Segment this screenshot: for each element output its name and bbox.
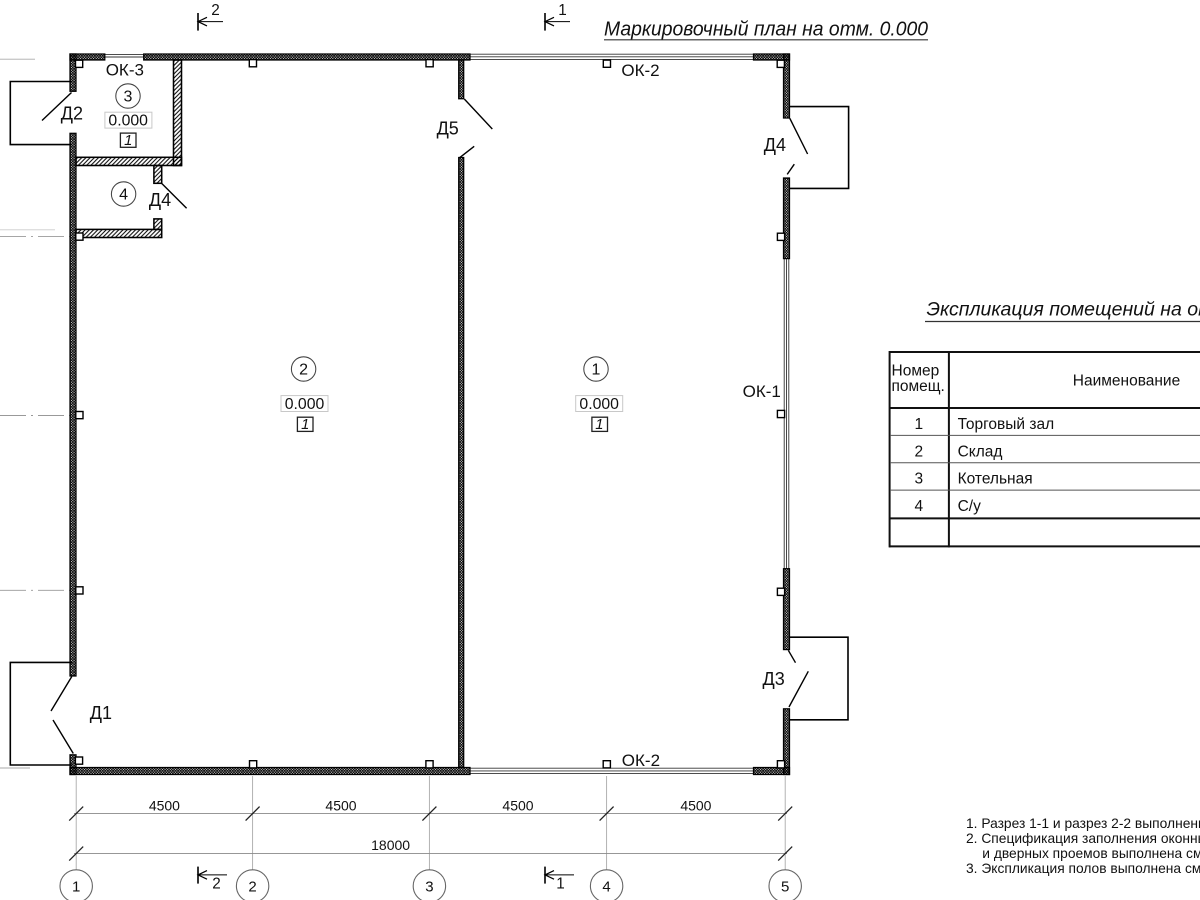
svg-text:4: 4 (602, 879, 610, 896)
svg-text:0.000: 0.000 (285, 396, 325, 413)
svg-text:4500: 4500 (502, 797, 533, 813)
svg-text:1: 1 (592, 362, 601, 379)
svg-text:1: 1 (914, 416, 923, 433)
svg-text:Наименование: Наименование (1073, 373, 1180, 390)
svg-text:и дверных проемов выполнена см: и дверных проемов выполнена см. лист 5 (982, 846, 1200, 861)
svg-text:2: 2 (248, 879, 256, 896)
svg-text:4: 4 (119, 187, 128, 204)
svg-text:Номер: Номер (892, 363, 940, 380)
svg-text:4500: 4500 (680, 797, 711, 813)
svg-text:ОК-2: ОК-2 (621, 61, 659, 80)
svg-text:Д1: Д1 (90, 703, 112, 723)
svg-text:2: 2 (914, 443, 923, 460)
svg-text:Д4: Д4 (149, 190, 171, 210)
svg-text:1: 1 (558, 2, 567, 19)
svg-text:ОК-1: ОК-1 (743, 382, 781, 401)
svg-text:Экспликация помещений на отм.: Экспликация помещений на отм. 0.000 (927, 299, 1200, 321)
svg-text:5: 5 (781, 879, 789, 896)
svg-text:Торговый зал: Торговый зал (958, 416, 1055, 433)
svg-text:1: 1 (72, 879, 80, 896)
svg-text:18000: 18000 (371, 837, 410, 853)
svg-text:2: 2 (299, 362, 308, 379)
svg-text:ОК-3: ОК-3 (106, 61, 144, 80)
svg-text:4500: 4500 (149, 797, 180, 813)
svg-text:2. Спецификация заполнения око: 2. Спецификация заполнения оконных проем… (966, 831, 1200, 846)
svg-text:Д4: Д4 (764, 135, 786, 155)
svg-text:0.000: 0.000 (579, 396, 619, 413)
svg-text:Котельная: Котельная (958, 471, 1033, 488)
svg-text:2: 2 (212, 876, 221, 893)
svg-text:3: 3 (124, 89, 133, 106)
svg-text:2: 2 (211, 2, 220, 19)
svg-text:1: 1 (124, 133, 132, 149)
svg-text:4: 4 (914, 498, 923, 515)
svg-text:1: 1 (301, 417, 309, 433)
svg-text:Маркировочный план на отм. 0.0: Маркировочный план на отм. 0.000 (604, 17, 929, 40)
svg-text:4500: 4500 (325, 797, 356, 813)
svg-text:Д5: Д5 (437, 118, 459, 138)
svg-text:0.000: 0.000 (108, 113, 148, 130)
svg-text:1. Разрез 1-1 и разрез 2-2 вып: 1. Разрез 1-1 и разрез 2-2 выполнены на … (966, 816, 1200, 831)
svg-text:помещ.: помещ. (892, 378, 945, 395)
svg-text:С/у: С/у (958, 498, 982, 515)
svg-text:Склад: Склад (958, 443, 1003, 460)
svg-text:3: 3 (425, 879, 433, 896)
svg-text:ОК-2: ОК-2 (622, 751, 660, 770)
svg-text:Д2: Д2 (61, 104, 83, 124)
svg-text:Д3: Д3 (763, 669, 785, 689)
svg-text:1: 1 (595, 417, 603, 433)
svg-text:1: 1 (556, 876, 565, 893)
svg-text:3. Экспликация полов выполнена: 3. Экспликация полов выполнена см. лист … (966, 861, 1200, 876)
svg-text:3: 3 (914, 471, 923, 488)
